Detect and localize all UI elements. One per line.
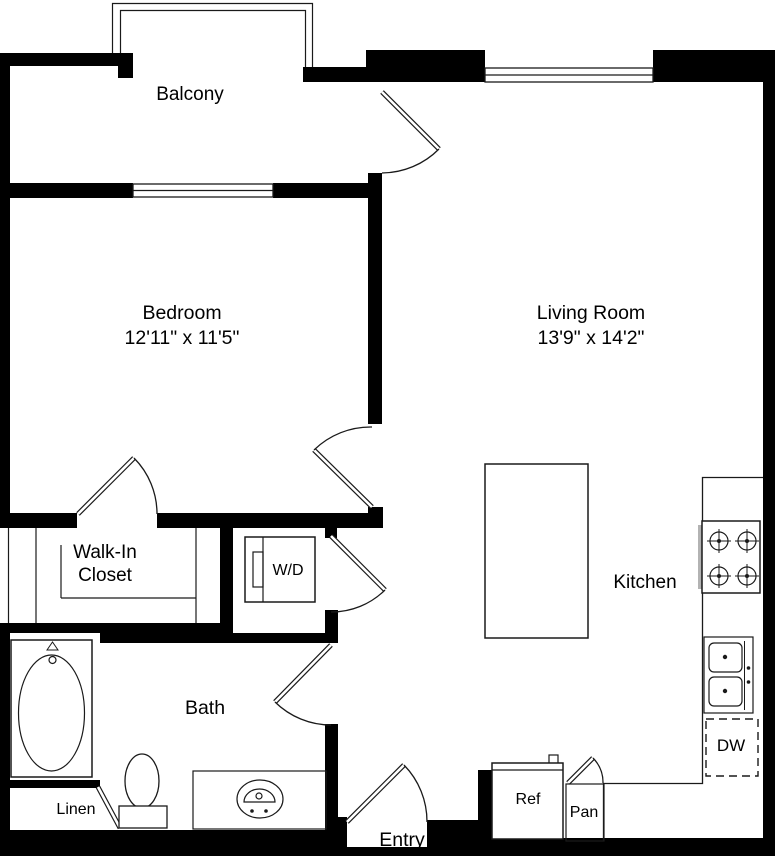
linen-closet-label: Linen	[56, 801, 95, 818]
pantry-label: Pan	[570, 804, 598, 821]
floor	[0, 0, 775, 856]
floor-plan-canvas: DW Ref Pan Balcony Bedroom 12'11" x 11'5…	[0, 0, 775, 856]
walk-in-closet-label-line1: Walk-In	[73, 542, 137, 563]
wall-segment	[366, 50, 485, 82]
sink-faucet-dot	[250, 809, 254, 813]
wall-segment	[273, 183, 382, 198]
wall-segment	[0, 830, 347, 856]
bedroom-label: Bedroom	[142, 302, 221, 324]
toilet-tank	[119, 806, 167, 828]
wall-segment	[763, 50, 775, 856]
wall-segment	[118, 53, 133, 78]
wall-segment	[368, 173, 382, 424]
wall-segment	[0, 183, 133, 198]
kitchen-label: Kitchen	[613, 572, 676, 593]
floor-plan: DW Ref Pan Balcony Bedroom 12'11" x 11'5…	[0, 0, 775, 856]
wall-segment	[0, 513, 77, 528]
wall-segment	[157, 513, 383, 528]
stove-outline	[702, 521, 760, 593]
toilet-bowl	[125, 754, 159, 808]
living-room-window	[485, 68, 653, 82]
washer-dryer-label: W/D	[272, 562, 303, 579]
entry-label: Entry	[379, 829, 425, 851]
wall-segment	[325, 724, 338, 830]
wall-segment	[0, 623, 233, 633]
wall-segment	[0, 780, 100, 788]
sink-faucet-dot	[264, 809, 268, 813]
wall-segment	[325, 817, 347, 847]
refrigerator: Ref	[492, 755, 563, 839]
bedroom-window	[133, 184, 273, 197]
wall-segment	[478, 770, 493, 838]
sink-drain-dot	[723, 655, 727, 659]
wall-segment	[653, 50, 775, 82]
wall-segment	[427, 820, 478, 838]
living-room-label: Living Room	[537, 302, 645, 324]
faucet-dot	[747, 666, 751, 670]
stove	[698, 521, 760, 593]
wall-segment	[220, 527, 233, 633]
wall-segment	[0, 633, 10, 830]
wall-segment	[325, 610, 338, 643]
balcony-label: Balcony	[156, 84, 224, 105]
wall-segment	[100, 633, 337, 643]
wall-segment	[0, 53, 10, 528]
dishwasher-label: DW	[717, 736, 745, 755]
faucet-dot	[747, 680, 751, 684]
bedroom-dimensions: 12'11" x 11'5"	[125, 327, 240, 349]
sink-drain-dot	[723, 689, 727, 693]
living-room-dimensions: 13'9" x 14'2"	[538, 327, 645, 349]
walk-in-closet-label-line2: Closet	[78, 565, 133, 586]
wall-segment	[0, 53, 133, 66]
bath-label: Bath	[185, 697, 225, 719]
refrigerator-label: Ref	[516, 791, 541, 808]
